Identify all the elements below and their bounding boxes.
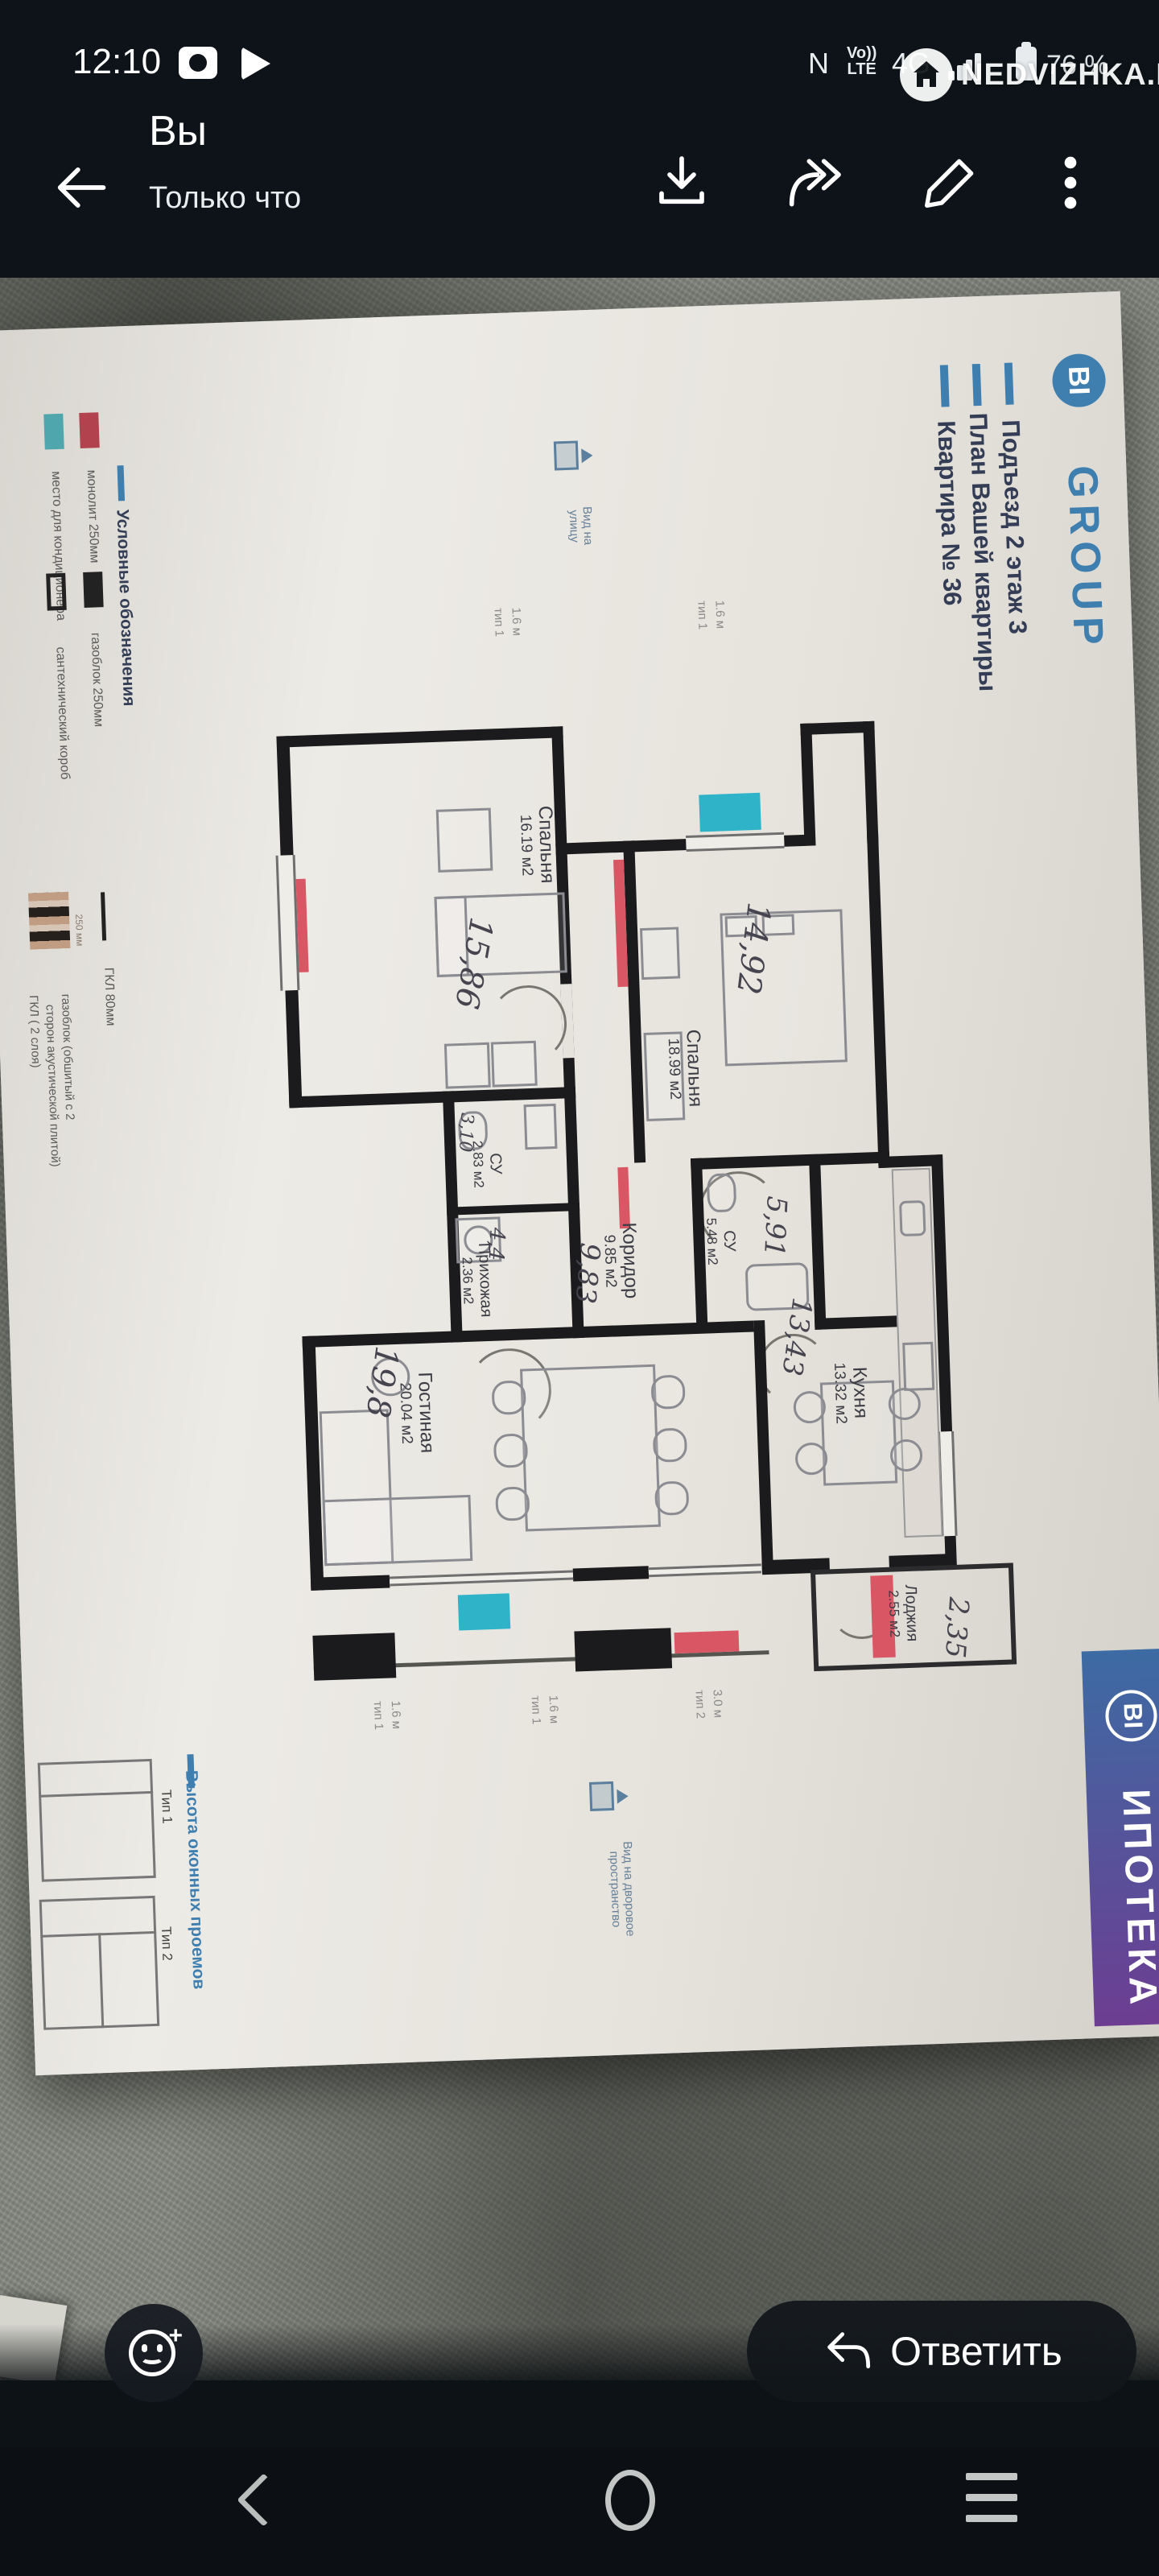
room-label-corridor: Коридор9.85 м2 [600,1222,642,1299]
window-legend-type2: Тип 2 [158,1926,175,1961]
chair-icon [654,1480,689,1515]
volte-bottom: LTE [848,60,876,78]
handwritten-area-corridor: 9,83 [569,1241,606,1305]
chair-icon [492,1380,526,1414]
legend-label-monolith: монолит 250мм [84,469,101,563]
bi-logo-text: BI [1062,365,1096,395]
nav-home-button[interactable] [605,2470,655,2531]
legend-label-gkl: ГКЛ 80мм [101,968,118,1026]
mortgage-label: ИПОТЕКА [1113,1789,1159,2010]
wall [863,721,878,844]
toilet-icon [707,1173,737,1212]
stove-icon [902,1342,934,1391]
wall [460,1320,753,1342]
sofa-icon [323,1495,473,1566]
window-legend-title: Высота оконных проемов [181,1770,208,1990]
wall [447,1203,579,1216]
back-arrow-icon [50,157,111,218]
sender-title: Вы [149,107,207,155]
plan-title-line-3: Квартира № 36 [931,420,967,606]
window [649,1563,761,1577]
bi-mortgage-logo-text: BI [1117,1703,1148,1729]
yard-view-arrow-icon [617,1789,629,1803]
window-type-label: тип 1 [695,601,709,630]
accent-bar [972,364,982,406]
photo-viewer[interactable]: BI GROUP Подъезд 2 этаж 3 План Вашей ква… [0,278,1159,2380]
watermark-text: NEDVIZHKA.KZ [961,58,1159,93]
legend-swatch-ac [43,414,64,450]
legend-swatch-gkl [101,892,106,940]
forward-icon [782,151,847,215]
forward-button[interactable] [782,151,847,215]
legend-swatch-plumbing [46,573,67,611]
legend-dim: 250 мм [73,914,85,946]
reply-label: Ответить [890,2328,1062,2375]
wall [279,726,563,747]
legend-label-gasblock: газоблок 250мм [88,633,105,728]
legend-label-gkl2-3: ГКЛ ( 2 слоя) [27,995,43,1068]
accent-bar [1004,363,1014,405]
accent-bar [940,365,950,407]
play-notification-icon [241,47,270,80]
radiator-mark [617,1167,630,1228]
chair-icon [650,1375,685,1410]
window-legend-type1: Тип 1 [158,1790,175,1824]
nightstand-icon [640,927,680,980]
handwritten-area-loggia: 2,35 [938,1596,975,1659]
pencil-icon [918,151,982,215]
chair-icon [653,1427,687,1462]
window [276,855,300,991]
window-height-label: 1.6 м [547,1695,561,1724]
legend-label-gkl2-1: газоблок (обшитый с 2 [59,993,76,1120]
floor-plan-document: BI GROUP Подъезд 2 этаж 3 План Вашей ква… [0,291,1159,2075]
sink-icon [524,1104,558,1150]
watermark: NEDVIZHKA.KZ [900,48,1159,101]
kebab-menu-icon [1038,151,1103,215]
volte-top: Vo)) [847,44,876,62]
room-label-loggia: Лоджия2.55 м2 [885,1584,921,1642]
window-height-label: 1.6 м [712,600,727,629]
chair-icon [495,1486,530,1521]
wardrobe-icon [444,1042,491,1089]
mortgage-banner: BI ИПОТЕКА [1082,1648,1159,2026]
wall [867,832,890,1168]
accent-bar [118,465,126,501]
handwritten-area-su1: 3,10 [455,1113,477,1153]
handwritten-area-su2: 5,91 [757,1195,793,1258]
ac-unit-mark [458,1593,510,1630]
street-view-arrow-icon [581,448,593,463]
nav-back-button[interactable] [237,2473,290,2526]
nav-recents-button[interactable] [966,2473,1017,2531]
window-height-label: 1.6 м [389,1700,403,1729]
wall [573,1566,650,1581]
message-timestamp: Только что [149,181,301,216]
reply-arrow-icon [821,2326,872,2377]
radiator-mark [674,1630,740,1653]
yard-view-icon [589,1781,614,1811]
camera-notification-icon [179,47,217,79]
legend-label-plumbing: сантехнический короб [52,646,72,779]
wall [691,1151,889,1170]
room-label-living: Гостиная20.04 м2 [395,1372,438,1454]
room-label-kitchen: Кухня13.32 м2 [830,1361,872,1424]
download-icon [650,151,714,215]
plan-title-line-1: Подъезд 2 этаж 3 [996,419,1032,635]
clock: 12:10 [72,42,161,82]
system-navigation-bar [0,2447,1159,2576]
window-height-label: 1.6 м [509,607,523,636]
window-diagram-type1 [38,1759,156,1882]
dresser-icon [436,807,493,872]
window-type-label: тип 1 [529,1695,543,1724]
back-button[interactable] [50,157,111,218]
wall [623,840,645,1162]
watermark-home-icon [900,48,953,101]
window [390,1571,573,1587]
wardrobe-icon [491,1041,538,1088]
ac-unit-mark [699,793,761,832]
legend-swatch-gkl2 [28,892,70,950]
download-button[interactable] [650,151,714,215]
yard-view-label: Вид на дворовоепространство [607,1841,637,1937]
window-type-label: тип 1 [371,1701,386,1730]
legend-title: Условные обозначения [112,509,138,706]
emoji-smile-icon: + [129,2330,175,2376]
window-height-label: 3.0 м [711,1689,725,1718]
wall [311,1575,390,1590]
wall [800,724,815,846]
room-label-bedroom1: Спальня16.19 м2 [516,805,559,884]
edit-button[interactable] [918,151,982,215]
reply-button[interactable]: Ответить [747,2301,1136,2402]
add-reaction-button[interactable]: + [105,2304,203,2402]
nfc-icon: N [808,47,829,80]
group-logo-text: GROUP [1058,464,1112,652]
street-view-icon [554,440,579,470]
window [686,832,785,852]
volte-icon: Vo))LTE [847,45,876,77]
wall [815,1315,898,1330]
wall-block [312,1633,396,1681]
app-header: Вы Только что [0,93,1159,278]
handwritten-area-hall: 4,4 [484,1227,509,1261]
kitchen-sink-icon [899,1200,926,1236]
window-type-label: тип 2 [693,1690,707,1719]
legend-swatch-gasblock [83,572,104,608]
more-options-button[interactable] [1038,151,1103,215]
street-view-label: Вид наулицу [567,506,596,546]
room-label-bedroom2: Спальня18.99 м2 [663,1029,706,1108]
wall-block [574,1628,672,1671]
dining-table-icon [520,1364,661,1532]
room-label-su2: СУ5.48 м2 [703,1217,739,1265]
legend-swatch-monolith [79,412,100,448]
chair-icon [493,1433,528,1468]
window-type-label: тип 1 [491,608,505,637]
